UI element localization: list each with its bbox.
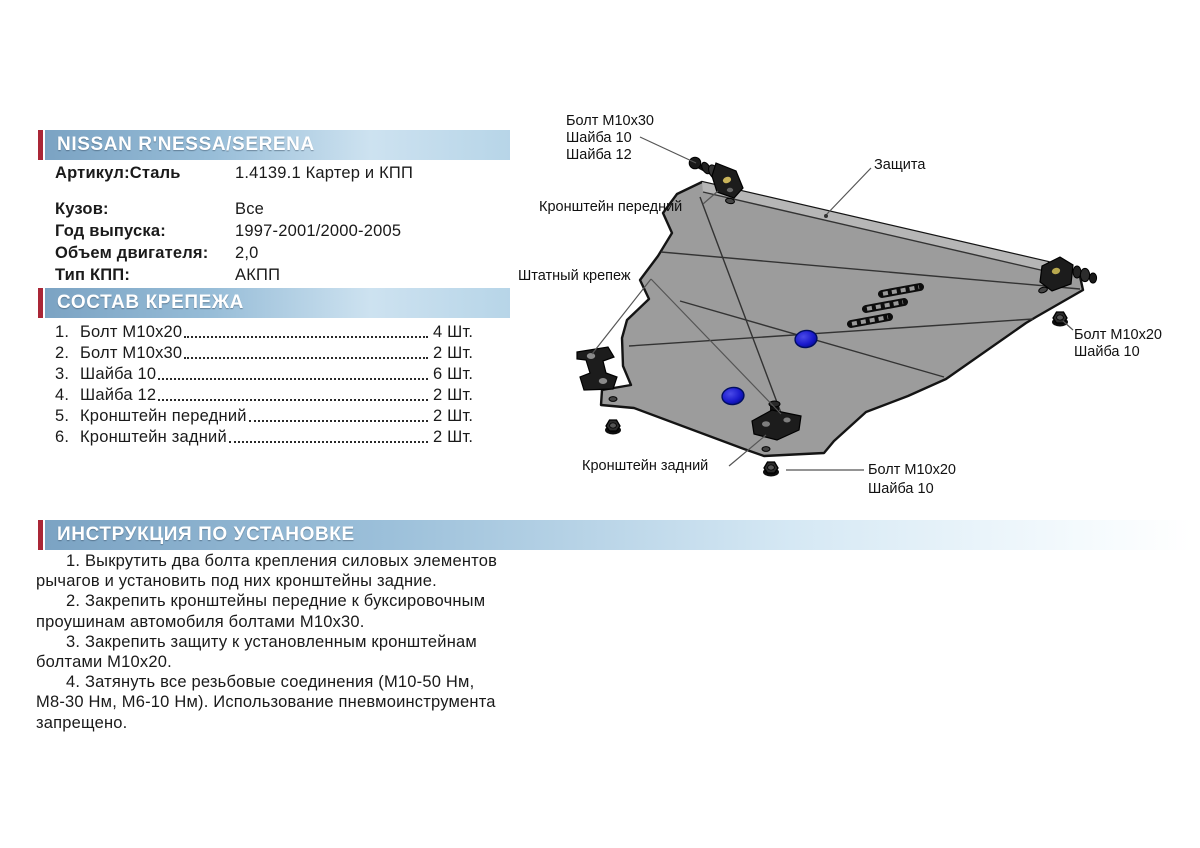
spec-row-gearbox: Тип КПП:АКПП [55, 266, 280, 285]
instruction-line: болтами M10x20. [36, 652, 656, 672]
red-accent-bar [38, 130, 43, 160]
leader-dots [249, 420, 428, 422]
spec-value: 2,0 [235, 244, 259, 262]
label-shield: Защита [874, 157, 925, 174]
instruction-line: M8-30 Нм, M6-10 Нм). Использование пневм… [36, 692, 656, 712]
item-number: 3. [55, 365, 80, 384]
label-bolt-right: Болт M10x20 Шайба 10 [1074, 327, 1162, 361]
left-stock-bracket [577, 347, 617, 390]
hex-bolt [1052, 312, 1068, 327]
item-number: 5. [55, 407, 80, 426]
item-qty: 2 Шт. [433, 386, 483, 405]
spec-value: Все [235, 200, 264, 218]
sku-value: 1.4139.1 Картер и КПП [235, 164, 413, 182]
label-line: Шайба 10 [566, 130, 654, 147]
hardware-item: 1.Болт M10x204 Шт. [55, 321, 483, 342]
item-qty: 2 Шт. [433, 407, 483, 426]
item-name: Шайба 10 [80, 365, 156, 384]
leader-dots [158, 378, 428, 380]
instruction-line: проушинам автомобиля болтами M10x30. [36, 612, 656, 632]
red-accent-bar [38, 288, 43, 318]
item-qty: 6 Шт. [433, 365, 483, 384]
instruction-line: 1. Выкрутить два болта крепления силовых… [36, 551, 656, 571]
item-number: 1. [55, 323, 80, 342]
label-line: Болт M10x20 [1074, 327, 1162, 344]
instruction-step: 3. Закрепить защиту к установленным крон… [36, 632, 656, 672]
instruction-line: рычагов и установить под них кронштейны … [36, 571, 656, 591]
instruction-line: 4. Затянуть все резьбовые соединения (M1… [36, 672, 656, 692]
item-qty: 4 Шт. [433, 323, 483, 342]
red-accent-bar [38, 520, 43, 550]
leader-dots [229, 441, 428, 443]
spec-value: АКПП [235, 266, 280, 284]
instruction-step: 4. Затянуть все резьбовые соединения (M1… [36, 672, 656, 733]
hex-bolt [763, 462, 779, 477]
instruction-sheet: NISSAN R'NESSA/SERENA Артикул:Сталь1.413… [0, 0, 1200, 848]
item-name: Болт M10x20 [80, 323, 182, 342]
item-name: Кронштейн передний [80, 407, 247, 426]
spec-label: Год выпуска: [55, 222, 235, 241]
instruction-line: запрещено. [36, 713, 656, 733]
hardware-item: 6.Кронштейн задний2 Шт. [55, 426, 483, 447]
label-line: Шайба 12 [566, 147, 654, 164]
instruction-line: 2. Закрепить кронштейны передние к букси… [36, 591, 656, 611]
hex-bolt [605, 420, 621, 435]
hardware-section-title: СОСТАВ КРЕПЕЖА [45, 288, 510, 318]
instructions-text: 1. Выкрутить два болта крепления силовых… [36, 551, 656, 733]
label-line: Шайба 10 [868, 480, 956, 499]
label-line: Шайба 10 [1074, 344, 1162, 361]
label-bracket-front: Кронштейн передний [539, 199, 682, 216]
instruction-line: 3. Закрепить защиту к установленным крон… [36, 632, 656, 652]
hardware-item: 3.Шайба 106 Шт. [55, 363, 483, 384]
instruction-step: 1. Выкрутить два болта крепления силовых… [36, 551, 656, 591]
leader-dot [824, 214, 828, 218]
leader-dots [158, 399, 428, 401]
instructions-section-title: ИНСТРУКЦИЯ ПО УСТАНОВКЕ [45, 520, 1193, 550]
item-qty: 2 Шт. [433, 428, 483, 447]
label-bolt-front: Болт M10x30 Шайба 10 Шайба 12 [566, 113, 654, 164]
item-number: 4. [55, 386, 80, 405]
leader-dots [184, 336, 428, 338]
item-number: 2. [55, 344, 80, 363]
hardware-item: 4.Шайба 122 Шт. [55, 384, 483, 405]
item-name: Болт M10x30 [80, 344, 182, 363]
hardware-item: 5.Кронштейн передний2 Шт. [55, 405, 483, 426]
hardware-item: 2.Болт M10x302 Шт. [55, 342, 483, 363]
sku-label: Артикул:Сталь [55, 164, 235, 183]
item-number: 6. [55, 428, 80, 447]
label-bracket-rear: Кронштейн задний [582, 458, 708, 475]
sku-row: Артикул:Сталь1.4139.1 Картер и КПП [55, 164, 413, 183]
instruction-step: 2. Закрепить кронштейны передние к букси… [36, 591, 656, 631]
label-line: Болт M10x30 [566, 113, 654, 130]
leader-dots [184, 357, 428, 359]
spec-label: Объем двигателя: [55, 244, 235, 263]
label-bolt-bottom: Болт M10x20 Шайба 10 [868, 461, 956, 499]
spec-label: Тип КПП: [55, 266, 235, 285]
label-line: Болт M10x20 [868, 461, 956, 480]
spec-value: 1997-2001/2000-2005 [235, 222, 401, 240]
hardware-list: 1.Болт M10x204 Шт. 2.Болт M10x302 Шт. 3.… [55, 321, 483, 447]
spec-row-years: Год выпуска:1997-2001/2000-2005 [55, 222, 401, 241]
item-name: Кронштейн задний [80, 428, 227, 447]
page-title: NISSAN R'NESSA/SERENA [45, 130, 510, 160]
spec-label: Кузов: [55, 200, 235, 219]
spec-row-body: Кузов:Все [55, 200, 264, 219]
label-stock-fastener: Штатный крепеж [518, 268, 631, 285]
item-qty: 2 Шт. [433, 344, 483, 363]
item-name: Шайба 12 [80, 386, 156, 405]
spec-row-engine: Объем двигателя:2,0 [55, 244, 259, 263]
